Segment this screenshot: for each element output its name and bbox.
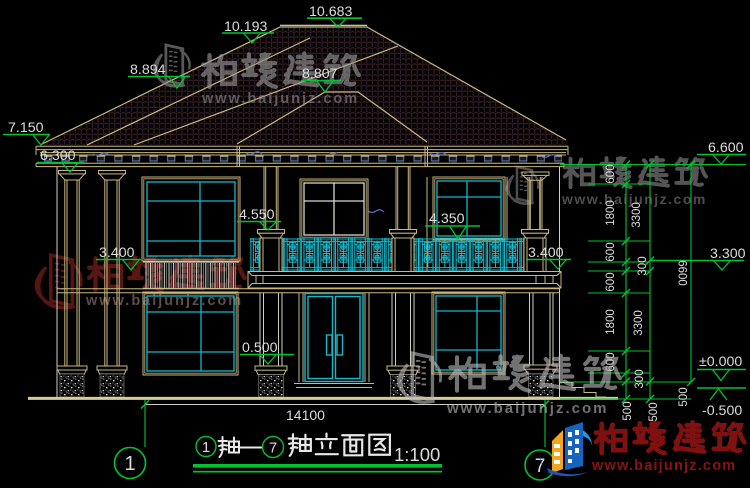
svg-text:600: 600: [605, 164, 617, 183]
svg-text:1:100: 1:100: [394, 444, 440, 465]
svg-text:3.400: 3.400: [99, 245, 135, 261]
svg-text:3300: 3300: [633, 310, 645, 336]
svg-text:3.400: 3.400: [528, 245, 564, 261]
svg-text:0099: 0099: [678, 260, 690, 286]
svg-text:500: 500: [622, 401, 634, 420]
svg-text:600: 600: [605, 272, 617, 291]
svg-text:1: 1: [124, 453, 135, 475]
svg-text:4.550: 4.550: [239, 207, 275, 223]
svg-text:1: 1: [202, 439, 210, 456]
svg-text:14100: 14100: [286, 407, 325, 423]
svg-text:7: 7: [269, 440, 277, 457]
svg-text:500: 500: [648, 402, 660, 421]
svg-text:-0.500: -0.500: [702, 403, 742, 419]
svg-text:www.baijunjz.com: www.baijunjz.com: [201, 91, 359, 107]
svg-text:300: 300: [634, 369, 646, 388]
svg-text:8.894: 8.894: [130, 62, 166, 78]
svg-text:0.500: 0.500: [242, 340, 278, 356]
svg-text:600: 600: [605, 242, 617, 261]
svg-text:8.807: 8.807: [302, 66, 338, 82]
svg-text:3.300: 3.300: [710, 246, 746, 262]
svg-text:www.baijunjz.com: www.baijunjz.com: [446, 400, 608, 417]
svg-text:7: 7: [535, 456, 546, 477]
svg-text:6.600: 6.600: [708, 140, 744, 156]
svg-text:3300: 3300: [631, 202, 643, 228]
svg-text:500: 500: [678, 387, 690, 406]
svg-text:4.350: 4.350: [429, 211, 465, 227]
svg-text:1800: 1800: [605, 200, 617, 226]
svg-text:6.300: 6.300: [40, 148, 76, 164]
svg-text:www.baijunjz.com: www.baijunjz.com: [591, 458, 736, 474]
svg-text:7.150: 7.150: [8, 120, 44, 136]
svg-text:300: 300: [637, 256, 649, 275]
svg-text:±0.000: ±0.000: [699, 354, 742, 370]
svg-text:1800: 1800: [605, 309, 617, 335]
